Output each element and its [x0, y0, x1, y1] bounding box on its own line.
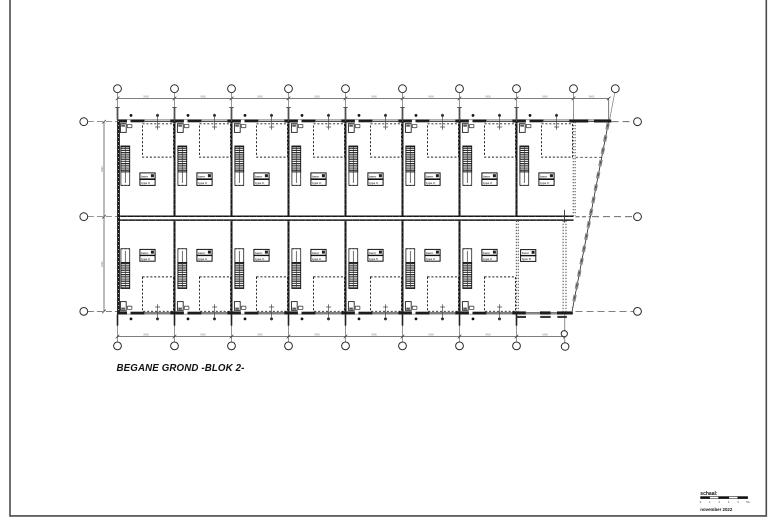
svg-text:bwnr: bwnr [369, 251, 377, 255]
svg-text:bwnr: bwnr [483, 175, 491, 179]
svg-text:type C: type C [540, 181, 550, 185]
svg-text:type C: type C [312, 257, 322, 261]
svg-text:type C: type C [198, 181, 208, 185]
svg-text:bwnr: bwnr [312, 251, 320, 255]
svg-text:type C: type C [255, 181, 265, 185]
svg-text:type C: type C [312, 181, 322, 185]
svg-text:bwnr: bwnr [426, 251, 434, 255]
svg-text:type C: type C [483, 181, 493, 185]
svg-text:type C: type C [426, 181, 436, 185]
svg-text:5400: 5400 [314, 96, 320, 99]
svg-text:type C: type C [141, 257, 151, 261]
svg-text:5400: 5400 [200, 334, 206, 337]
svg-text:BEGANE GROND -BLOK 2-: BEGANE GROND -BLOK 2- [117, 363, 245, 374]
svg-text:type C: type C [369, 257, 379, 261]
svg-text:5400: 5400 [542, 334, 548, 337]
svg-text:bwnr: bwnr [141, 175, 149, 179]
svg-text:bwnr: bwnr [255, 175, 263, 179]
svg-text:5400: 5400 [428, 96, 434, 99]
svg-text:5400: 5400 [143, 334, 149, 337]
svg-text:november 2022: november 2022 [700, 507, 733, 512]
svg-text:bwnr: bwnr [540, 175, 548, 179]
svg-text:type C: type C [426, 257, 436, 261]
svg-text:5400: 5400 [485, 96, 491, 99]
svg-text:bwnr: bwnr [369, 175, 377, 179]
svg-text:5m: 5m [746, 500, 750, 504]
svg-text:type C: type C [255, 257, 265, 261]
svg-text:5400: 5400 [371, 96, 377, 99]
svg-text:9280: 9280 [101, 166, 104, 172]
svg-text:5400: 5400 [143, 96, 149, 99]
svg-text:bwnr: bwnr [255, 251, 263, 255]
svg-text:5400: 5400 [257, 96, 263, 99]
svg-text:type C: type C [141, 181, 151, 185]
svg-text:5400: 5400 [257, 334, 263, 337]
svg-text:bwnr: bwnr [426, 175, 434, 179]
svg-text:type C: type C [483, 257, 493, 261]
svg-text:bwnr: bwnr [198, 251, 206, 255]
svg-text:5400: 5400 [428, 334, 434, 337]
svg-text:5400: 5400 [485, 334, 491, 337]
svg-text:bwnr: bwnr [141, 251, 149, 255]
svg-text:type C: type C [369, 181, 379, 185]
svg-text:bwnr: bwnr [312, 175, 320, 179]
svg-text:bwnr: bwnr [522, 251, 530, 255]
svg-text:5400: 5400 [200, 96, 206, 99]
svg-text:bwnr: bwnr [483, 251, 491, 255]
svg-text:type D: type D [522, 257, 532, 261]
svg-text:5400: 5400 [314, 334, 320, 337]
svg-text:5400: 5400 [371, 334, 377, 337]
svg-text:bwnr: bwnr [198, 175, 206, 179]
svg-text:5400: 5400 [589, 96, 595, 99]
svg-text:5400: 5400 [542, 96, 548, 99]
svg-text:9280: 9280 [101, 261, 104, 267]
svg-text:type C: type C [198, 257, 208, 261]
svg-text:schaal:: schaal: [700, 491, 718, 497]
